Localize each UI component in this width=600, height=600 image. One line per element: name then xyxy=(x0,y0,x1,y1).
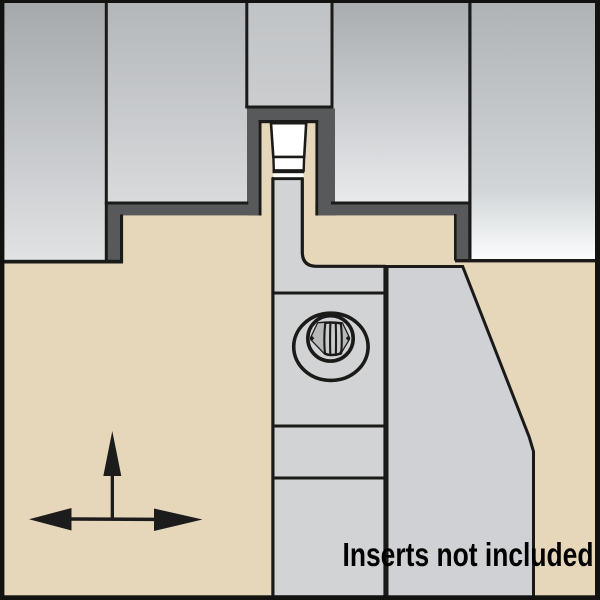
svg-text:Inserts not included: Inserts not included xyxy=(343,537,594,574)
